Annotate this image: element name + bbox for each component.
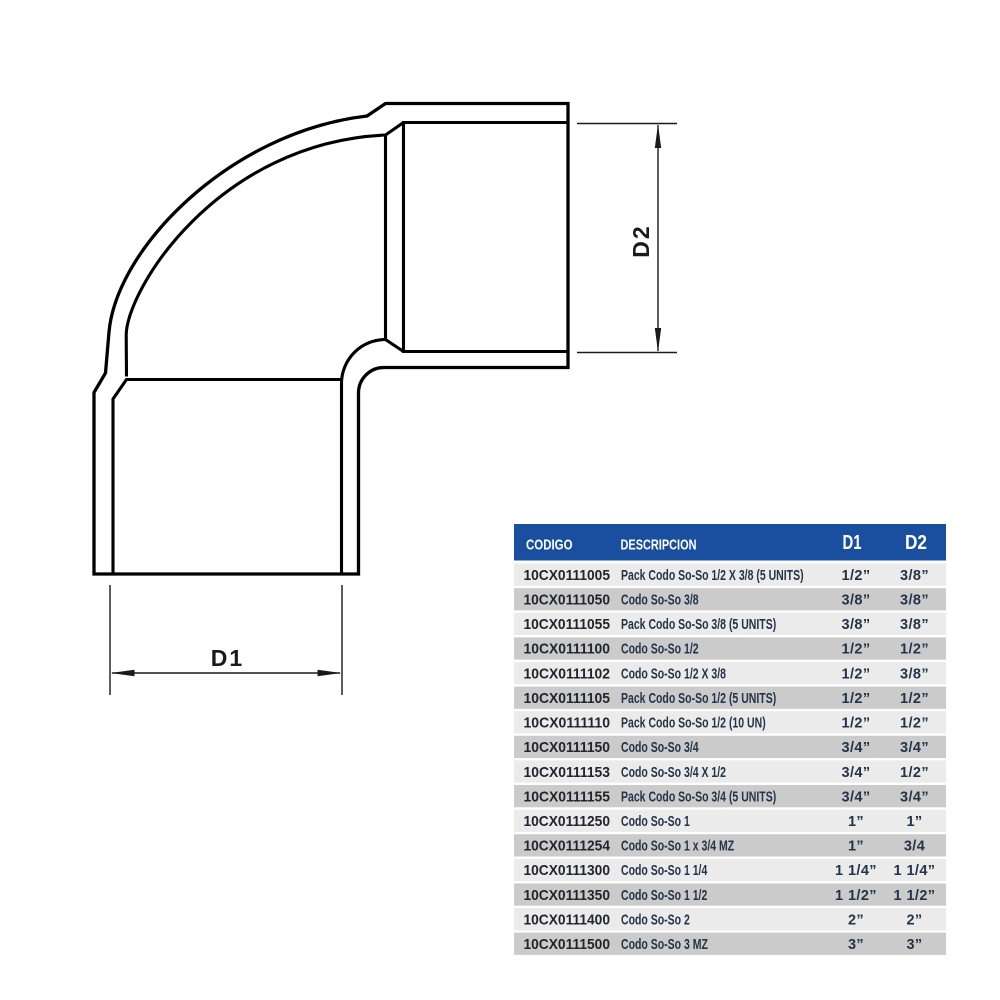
svg-text:3/4: 3/4	[904, 839, 925, 855]
svg-text:10CX0111100: 10CX0111100	[524, 641, 611, 658]
svg-text:1 1/2”: 1 1/2”	[894, 888, 936, 904]
svg-text:10CX0111500: 10CX0111500	[524, 936, 611, 953]
svg-text:3/8”: 3/8”	[841, 593, 870, 609]
svg-text:1/2”: 1/2”	[900, 642, 929, 658]
svg-text:3/4”: 3/4”	[900, 740, 929, 756]
svg-text:Codo So-So 1 x 3/4 MZ: Codo So-So 1 x 3/4 MZ	[621, 838, 734, 855]
svg-text:D2: D2	[628, 224, 654, 257]
svg-text:Codo So-So 1/2: Codo So-So 1/2	[621, 641, 699, 658]
svg-text:3”: 3”	[848, 937, 864, 953]
svg-text:1”: 1”	[848, 839, 864, 855]
svg-text:10CX0111350: 10CX0111350	[524, 887, 611, 904]
svg-text:1/2”: 1/2”	[841, 642, 870, 658]
svg-text:10CX0111153: 10CX0111153	[524, 764, 611, 781]
svg-text:Pack Codo So-So 1/2 (5 UNITS): Pack Codo So-So 1/2 (5 UNITS)	[621, 690, 776, 707]
svg-text:10CX0111300: 10CX0111300	[524, 862, 611, 879]
svg-text:1/2”: 1/2”	[900, 716, 929, 732]
svg-text:3/4”: 3/4”	[841, 789, 870, 805]
svg-text:1”: 1”	[848, 814, 864, 830]
svg-text:Pack Codo So-So 1/2 X 3/8 (5 U: Pack Codo So-So 1/2 X 3/8 (5 UNITS)	[621, 567, 804, 584]
svg-text:1 1/2”: 1 1/2”	[835, 888, 877, 904]
svg-text:Codo So-So 2: Codo So-So 2	[621, 911, 690, 928]
svg-text:1/2”: 1/2”	[841, 716, 870, 732]
svg-text:10CX0111050: 10CX0111050	[524, 592, 611, 609]
svg-text:D1: D1	[211, 645, 244, 671]
svg-text:10CX0111105: 10CX0111105	[524, 690, 611, 707]
svg-text:Codo So-So 3/4: Codo So-So 3/4	[621, 739, 699, 756]
svg-text:10CX0111110: 10CX0111110	[524, 715, 611, 732]
svg-text:10CX0111155: 10CX0111155	[524, 788, 611, 805]
svg-text:Codo So-So 1/2 X 3/8: Codo So-So 1/2 X 3/8	[621, 665, 726, 682]
svg-text:3/8”: 3/8”	[900, 617, 929, 633]
svg-text:Codo So-So 1 1/2: Codo So-So 1 1/2	[621, 887, 707, 904]
svg-text:3”: 3”	[906, 937, 922, 953]
svg-text:3/8”: 3/8”	[900, 593, 929, 609]
svg-text:10CX0111102: 10CX0111102	[524, 665, 611, 682]
svg-text:10CX0111055: 10CX0111055	[524, 616, 611, 633]
svg-text:1/2”: 1/2”	[900, 691, 929, 707]
svg-text:1”: 1”	[906, 814, 922, 830]
svg-text:D2: D2	[905, 532, 927, 554]
svg-text:Pack Codo So-So 1/2 (10 UN): Pack Codo So-So 1/2 (10 UN)	[621, 715, 766, 732]
svg-text:CODIGO: CODIGO	[526, 537, 573, 554]
svg-text:10CX0111400: 10CX0111400	[524, 911, 611, 928]
svg-text:DESCRIPCION: DESCRIPCION	[621, 537, 697, 554]
svg-text:2”: 2”	[848, 912, 864, 928]
svg-text:1/2”: 1/2”	[841, 666, 870, 682]
svg-text:1/2”: 1/2”	[841, 691, 870, 707]
svg-text:3/4”: 3/4”	[900, 789, 929, 805]
svg-text:10CX0111150: 10CX0111150	[524, 739, 611, 756]
svg-text:3/8”: 3/8”	[900, 666, 929, 682]
svg-text:Codo So-So 3 MZ: Codo So-So 3 MZ	[621, 936, 708, 953]
svg-text:1/2”: 1/2”	[841, 568, 870, 584]
svg-text:1 1/4”: 1 1/4”	[835, 863, 877, 879]
svg-text:3/4”: 3/4”	[841, 740, 870, 756]
svg-text:2”: 2”	[906, 912, 922, 928]
svg-text:Codo So-So 1 1/4: Codo So-So 1 1/4	[621, 862, 708, 879]
svg-text:Codo So-So 3/8: Codo So-So 3/8	[621, 592, 699, 609]
svg-text:10CX0111005: 10CX0111005	[524, 567, 611, 584]
svg-text:Codo So-So 1: Codo So-So 1	[621, 813, 690, 830]
svg-text:1/2”: 1/2”	[900, 765, 929, 781]
svg-text:10CX0111250: 10CX0111250	[524, 813, 611, 830]
svg-text:Pack Codo So-So 3/4 (5 UNITS): Pack Codo So-So 3/4 (5 UNITS)	[621, 788, 776, 805]
svg-text:3/4”: 3/4”	[841, 765, 870, 781]
svg-text:D1: D1	[843, 532, 862, 554]
svg-text:1 1/4”: 1 1/4”	[894, 863, 936, 879]
svg-text:3/8”: 3/8”	[841, 617, 870, 633]
svg-text:Pack Codo So-So 3/8 (5 UNITS): Pack Codo So-So 3/8 (5 UNITS)	[621, 616, 776, 633]
svg-text:10CX0111254: 10CX0111254	[524, 838, 611, 855]
svg-text:Codo So-So 3/4 X 1/2: Codo So-So 3/4 X 1/2	[621, 764, 726, 781]
svg-text:3/8”: 3/8”	[900, 568, 929, 584]
